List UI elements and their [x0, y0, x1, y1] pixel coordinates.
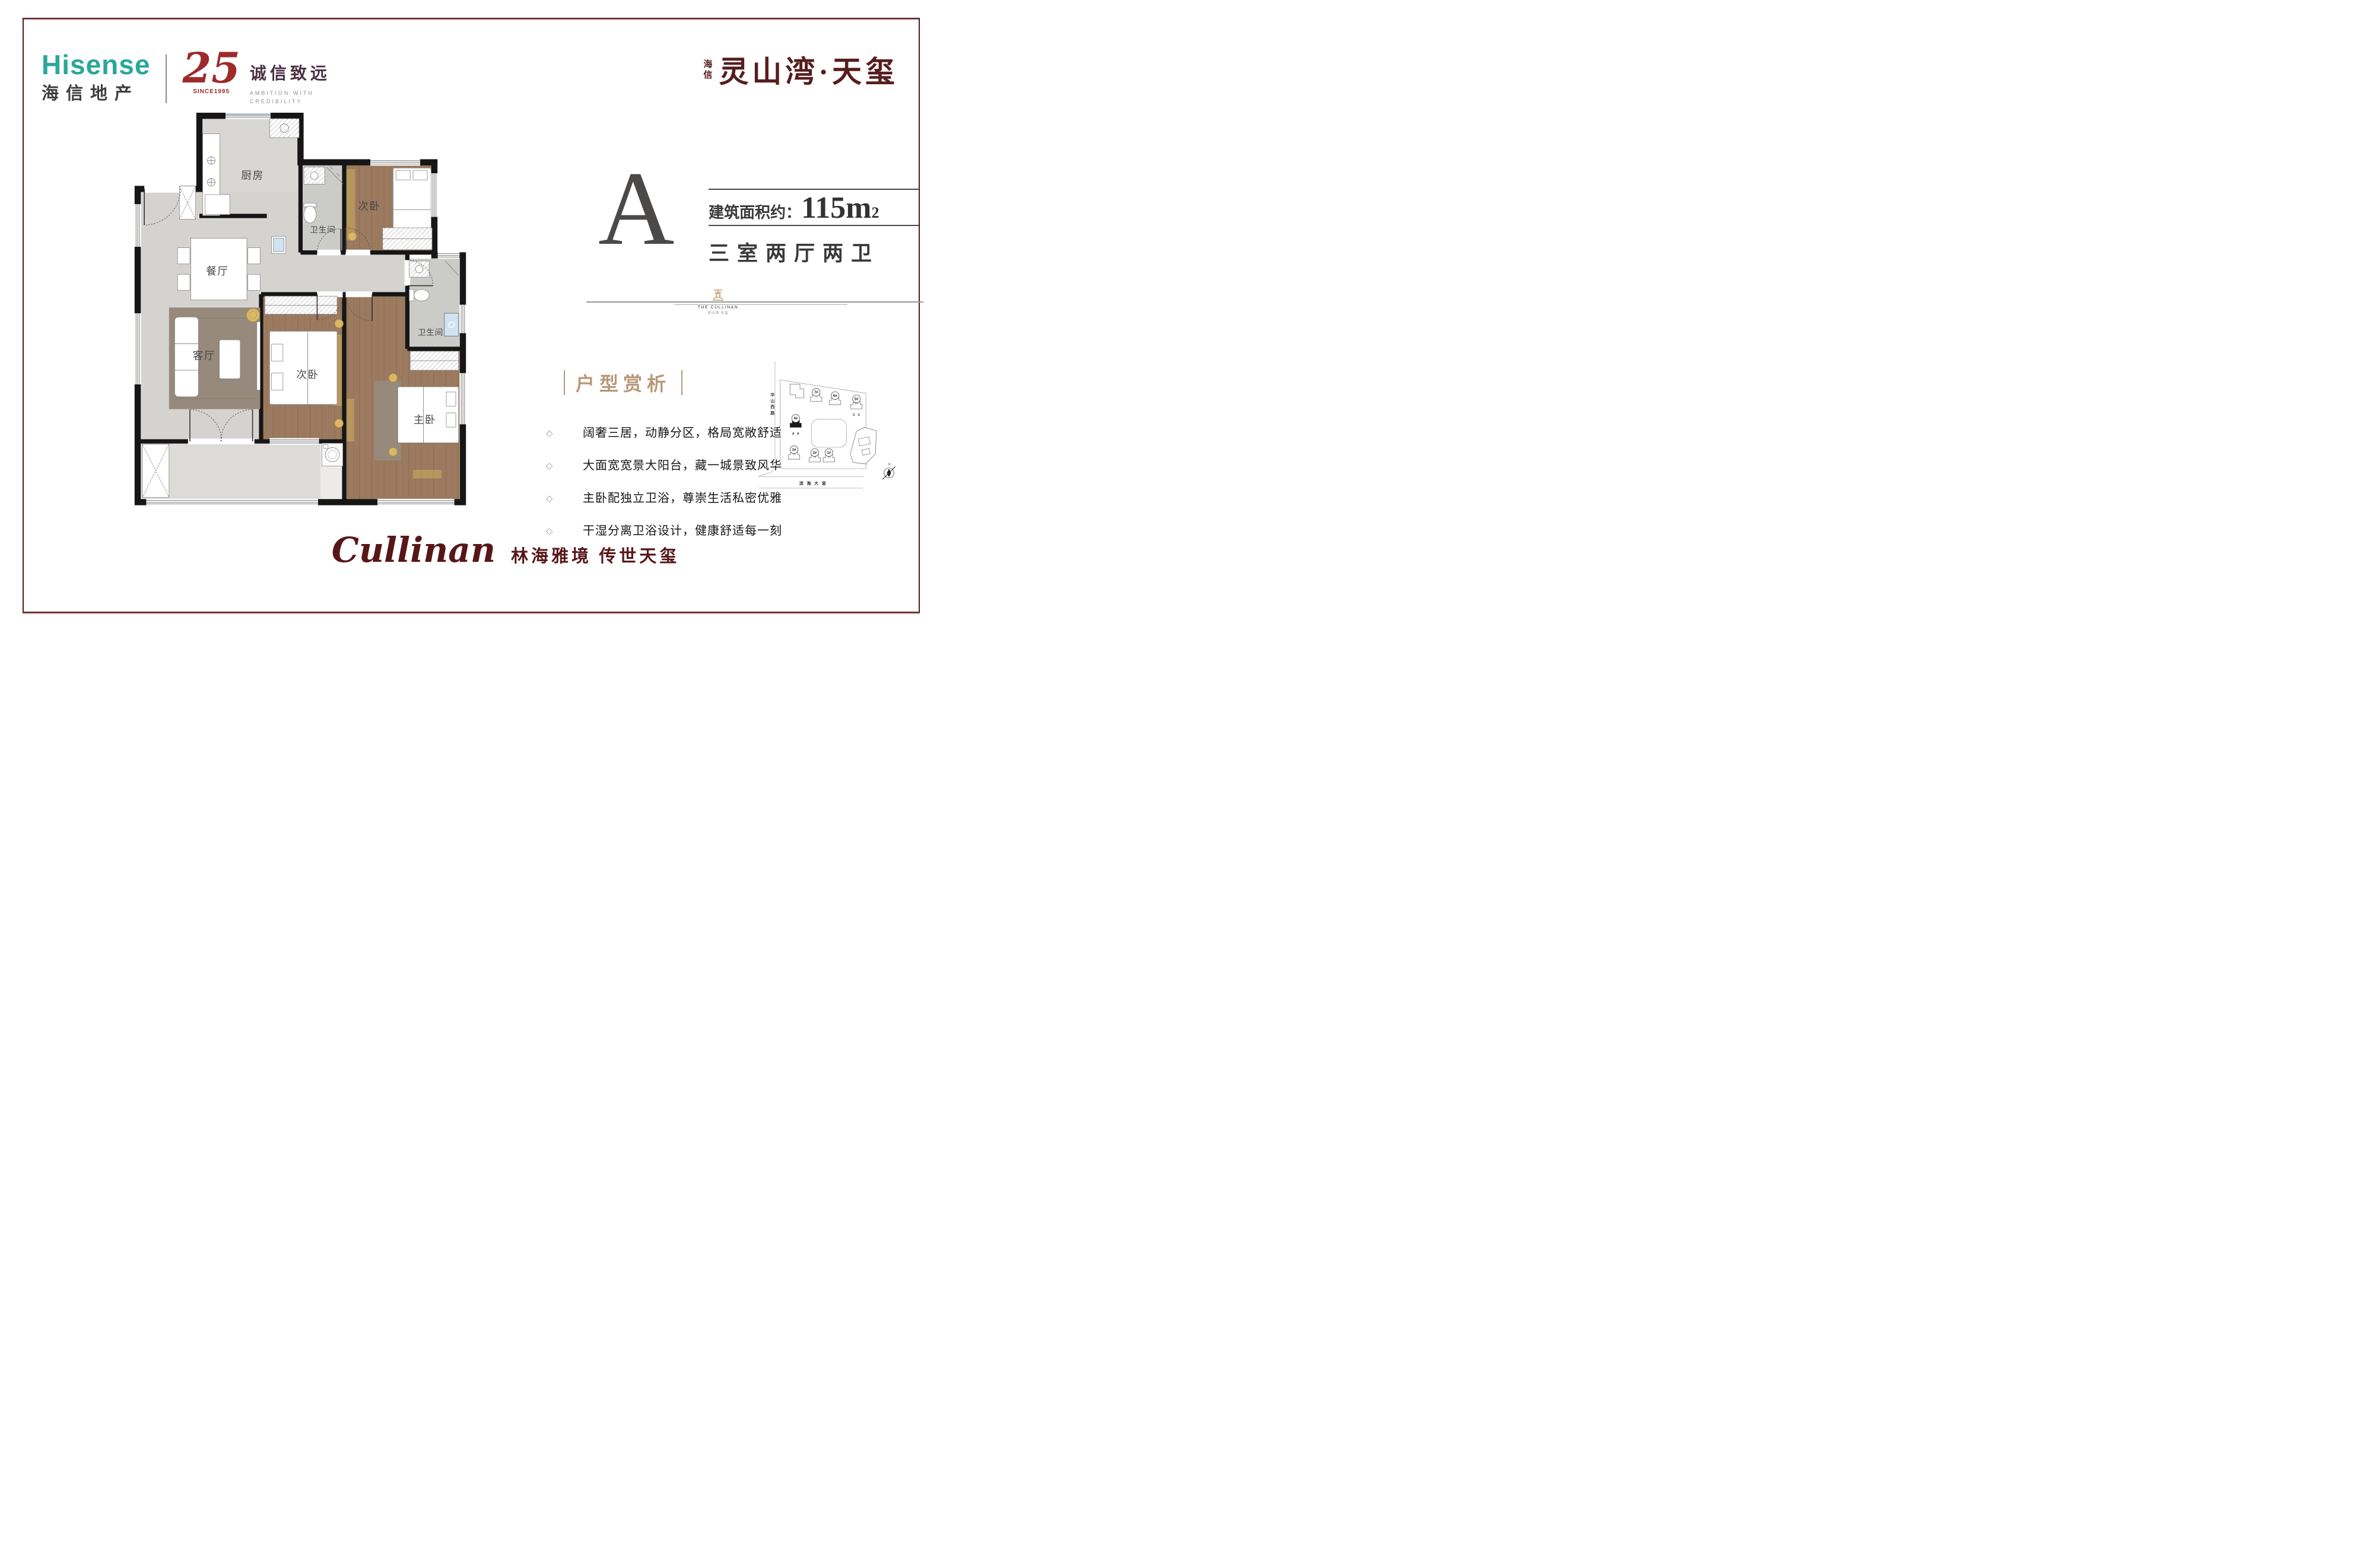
seal-icon — [713, 290, 723, 300]
unit-area-label: 建筑面积约： — [709, 201, 801, 222]
bottom-slogan: Cullinan 林海雅境 传世天玺 — [298, 533, 713, 567]
site-building-4-highlighted: 4# A A — [790, 415, 801, 436]
emblem-subtext: 灵山湾·天玺 — [707, 310, 728, 315]
brand-divider-line — [166, 55, 167, 103]
unit-area-sup: 2 — [871, 204, 879, 222]
site-pond — [811, 419, 846, 447]
unit-info-block: 建筑面积约： 115m 2 三室两厅两卫 — [709, 189, 919, 267]
analysis-bar-right — [681, 370, 682, 395]
project-logo: 海信 灵山湾·天玺 — [703, 56, 898, 88]
unit-rooms-text: 三室两厅两卫 — [709, 237, 919, 267]
site-building-5: 5# C C — [851, 395, 862, 417]
room-label-dining: 餐厅 — [206, 265, 228, 277]
site-building-1: 1# — [823, 449, 834, 462]
compass-north-label: N — [888, 463, 891, 466]
svg-text:5#: 5# — [855, 397, 859, 401]
site-building-2: 2# — [809, 449, 820, 462]
compass-icon: N — [882, 463, 896, 479]
road-bottom-label: 滨海大道 — [799, 481, 829, 486]
analysis-title: 户型赏析 — [576, 369, 671, 396]
project-logo-name: 灵山湾·天玺 — [719, 56, 898, 88]
analysis-title-block: 户型赏析 — [564, 369, 682, 396]
svg-text:7#: 7# — [814, 391, 818, 395]
cullinan-emblem: THE CULLINAN 灵山湾·天玺 — [682, 288, 754, 316]
site-building-6: 6# — [830, 392, 841, 405]
panel-divider-line — [586, 301, 923, 303]
slogan-script: Cullinan — [332, 533, 496, 567]
diamond-bullet-icon: ◇ — [546, 459, 560, 473]
anniversary-slogan-en: AMBITION WITH CREDIBILITY — [250, 89, 331, 106]
site-map: 7# 6# 5# C C 4# A A 3# 2# — [755, 358, 909, 494]
unit-info-bottomline — [709, 225, 919, 226]
svg-text:6#: 6# — [833, 395, 837, 398]
unit-letter: A — [598, 155, 675, 261]
svg-text:A A: A A — [792, 432, 800, 435]
hisense-wordmark: Hisense — [42, 51, 150, 78]
diamond-bullet-icon: ◇ — [546, 491, 560, 506]
anniversary-slogan: 诚信致远 AMBITION WITH CREDIBILITY — [250, 51, 331, 106]
road-left-label: 华山西路 — [770, 392, 774, 417]
svg-text:2#: 2# — [812, 451, 817, 455]
svg-text:4#: 4# — [793, 417, 798, 421]
hisense-brand-block: Hisense 海信地产 25 SINCE1995 诚信致远 AMBITION … — [42, 51, 331, 106]
room-label-kitchen: 厨房 — [241, 170, 263, 182]
room-label-bath-right: 卫生间 — [418, 328, 443, 337]
room-label-living: 客厅 — [193, 350, 215, 362]
anniversary-since: SINCE1995 — [193, 88, 230, 95]
anniversary-slogan-cn: 诚信致远 — [250, 61, 331, 84]
room-label-bedroom-top: 次卧 — [358, 201, 380, 212]
unit-info-topline — [709, 189, 919, 190]
anniversary-25-logo: 25 SINCE1995 — [182, 49, 240, 95]
hisense-logo: Hisense 海信地产 — [42, 51, 150, 103]
road-left-line — [758, 361, 775, 476]
poster-page: Hisense 海信地产 25 SINCE1995 诚信致远 AMBITION … — [0, 0, 941, 627]
anniversary-number: 25 — [182, 49, 240, 88]
project-logo-prefix: 海信 — [703, 59, 715, 81]
unit-area-value: 115m — [801, 193, 871, 222]
room-label-master: 主卧 — [414, 414, 436, 426]
diamond-bullet-icon: ◇ — [546, 426, 560, 441]
site-building-7: 7# — [811, 389, 822, 402]
analysis-bar-left — [564, 370, 565, 395]
site-building-misc — [790, 384, 804, 398]
room-label-bath-top: 卫生间 — [310, 225, 335, 234]
svg-text:3#: 3# — [792, 449, 796, 452]
svg-text:C C: C C — [853, 414, 861, 417]
slogan-cn: 林海雅境 传世天玺 — [511, 542, 679, 567]
room-label-bedroom-mid: 次卧 — [296, 369, 319, 381]
emblem-text: THE CULLINAN — [698, 306, 739, 310]
site-building-3: 3# — [788, 446, 799, 459]
hisense-cn-name: 海信地产 — [42, 85, 150, 103]
floor-plan: 厨房 餐厅 客厅 次卧 次卧 主卧 卫生间 卫生间 — [119, 109, 522, 524]
site-commercial — [850, 427, 877, 464]
svg-text:1#: 1# — [827, 451, 831, 455]
